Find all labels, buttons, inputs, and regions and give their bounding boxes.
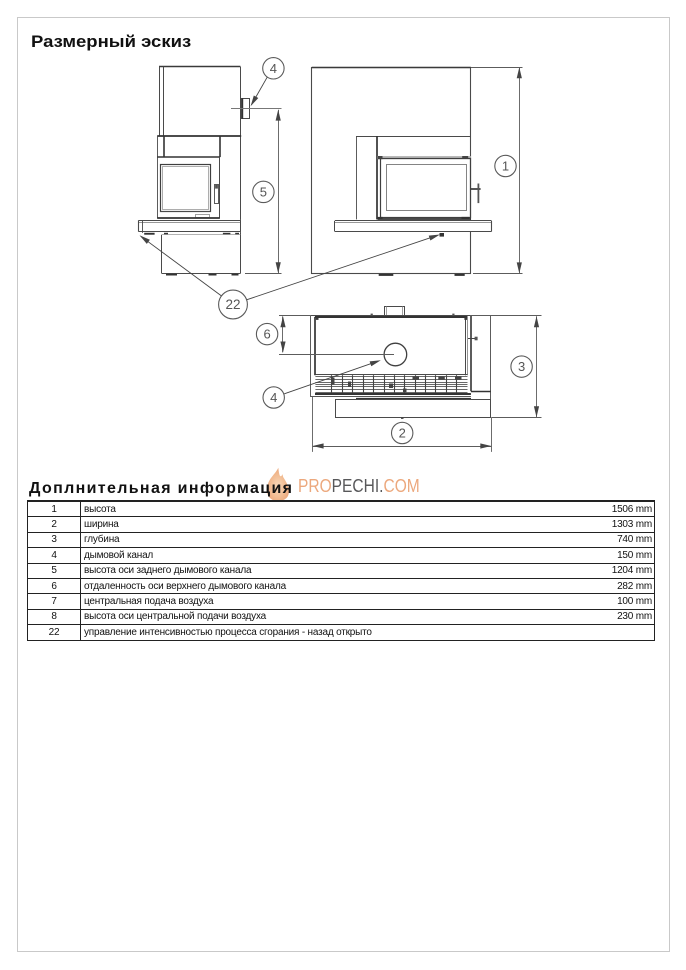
svg-text:22: 22 (225, 297, 240, 312)
svg-text:4: 4 (270, 390, 277, 405)
svg-text:3: 3 (518, 359, 525, 374)
svg-text:6: 6 (263, 327, 270, 342)
svg-text:5: 5 (260, 185, 267, 200)
svg-text:2: 2 (399, 426, 406, 441)
svg-text:1: 1 (502, 159, 509, 174)
svg-text:4: 4 (270, 61, 277, 76)
